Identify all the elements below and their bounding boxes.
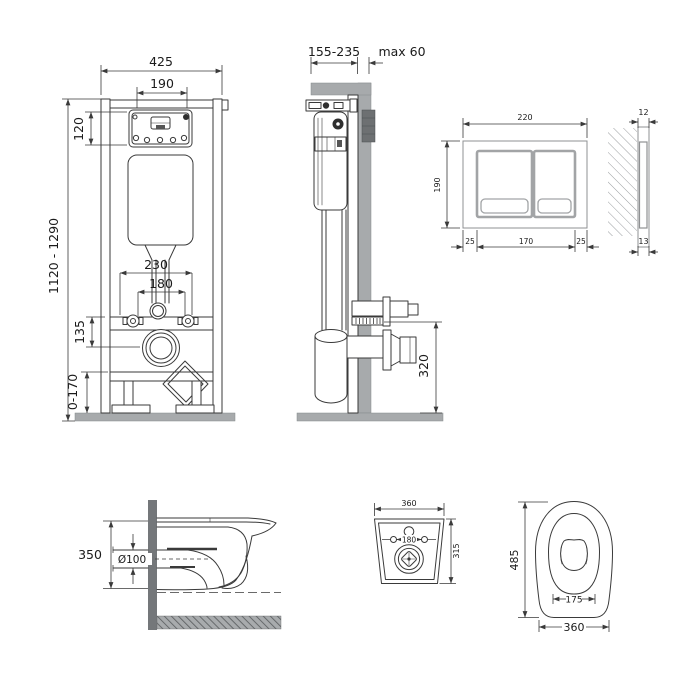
dim-label: 175 [565,596,582,606]
dim-label: 485 [508,550,521,571]
wall-top-bar [311,83,371,95]
outlet-flange [383,330,391,370]
dim-wall-max: max 60 [369,44,426,74]
bowl-section-outline [157,518,276,590]
dim-label: 13 [638,237,648,246]
dim-label: 320 [416,354,431,378]
dim-label: 190 [433,177,442,192]
bolt-hole-right [422,537,428,543]
adjustable-feet [112,381,214,413]
dim-label: 180 [149,276,173,291]
floor-bar [297,413,443,421]
frame-top-crossbar [110,100,213,108]
outlet-cylinder [400,337,416,363]
drawing-svg: 425 190 120 230 180 135 [0,0,700,700]
dim-label: 350 [78,547,102,562]
dim-height-range: 1120 - 1290 [46,99,101,421]
dim-label-margin-right: 25 [576,237,586,246]
dim-bowl-width: 360 [539,620,609,634]
outlet-cone [391,334,400,366]
bowl-side-view: Ø100 350 [78,500,281,630]
cistern-side [314,112,347,210]
dim-box-height: 120 [71,112,127,145]
dim-label-buttons-span: 170 [519,237,534,246]
dim-label: 220 [517,113,532,122]
dim-label: 1120 - 1290 [46,218,61,294]
dim-inner-width: 190 [137,76,187,108]
drain-bend-top [315,330,347,343]
top-wall-bracket [306,99,357,112]
dim-label: 425 [149,54,173,69]
bolt-hole-left [391,537,397,543]
inlet-cap [408,304,418,315]
dim-label: 135 [72,320,87,344]
dim-label: 180 [402,536,417,545]
dim-label: 155-235 [308,44,360,59]
dim-plate-bottom: 25 170 25 [451,230,599,252]
dim-plate-height: 190 [433,141,460,228]
dim-mount-width: 360 [375,499,445,516]
dim-plate-width: 220 [463,113,587,138]
threaded-rod [352,317,383,325]
frame-rail-right [213,99,222,413]
dim-depth-range: 155-235 [308,44,360,74]
frame-side-view: 155-235 max 60 320 [297,44,443,421]
dim-outlet-diameter: Ø100 [112,534,152,584]
dim-label: 120 [71,117,86,141]
dim-thickness-top: 12 [629,108,658,128]
floor-bar [75,413,235,421]
mount-top-view: 180 360 315 [375,499,462,584]
dim-label: 0-170 [65,374,80,410]
frame-rail-left [101,99,110,413]
dim-label: Ø100 [118,554,146,566]
bowl-top-view: 485 175 360 [508,502,613,635]
drain-outlet-ring [143,330,180,367]
floor [157,616,281,629]
cistern [128,155,193,245]
inlet-stub [352,301,383,316]
flush-plate-front-view: 220 190 25 170 25 [433,113,599,252]
dim-label-margin-left: 25 [465,237,475,246]
dim-label: 315 [452,543,461,558]
dim-label: 360 [564,621,585,634]
dim-label: 190 [150,76,174,91]
inlet-cylinder [390,301,408,317]
drain-bend-body [315,336,347,403]
dim-label: max 60 [378,44,425,59]
plate-profile-inner [640,142,648,228]
hanger-tab [222,100,228,110]
dim-label: 360 [401,499,416,508]
dim-label: 230 [144,257,168,272]
flush-plate-side-view: 12 13 [608,108,658,256]
frame-rail [348,95,358,413]
technical-drawing-canvas: 425 190 120 230 180 135 [0,0,700,700]
flush-pipe-side [322,210,346,330]
frame-front-view: 425 190 120 230 180 135 [46,54,235,421]
outlet-stub [347,336,383,358]
wall-hatching [608,128,637,236]
dim-label: 12 [638,108,648,117]
